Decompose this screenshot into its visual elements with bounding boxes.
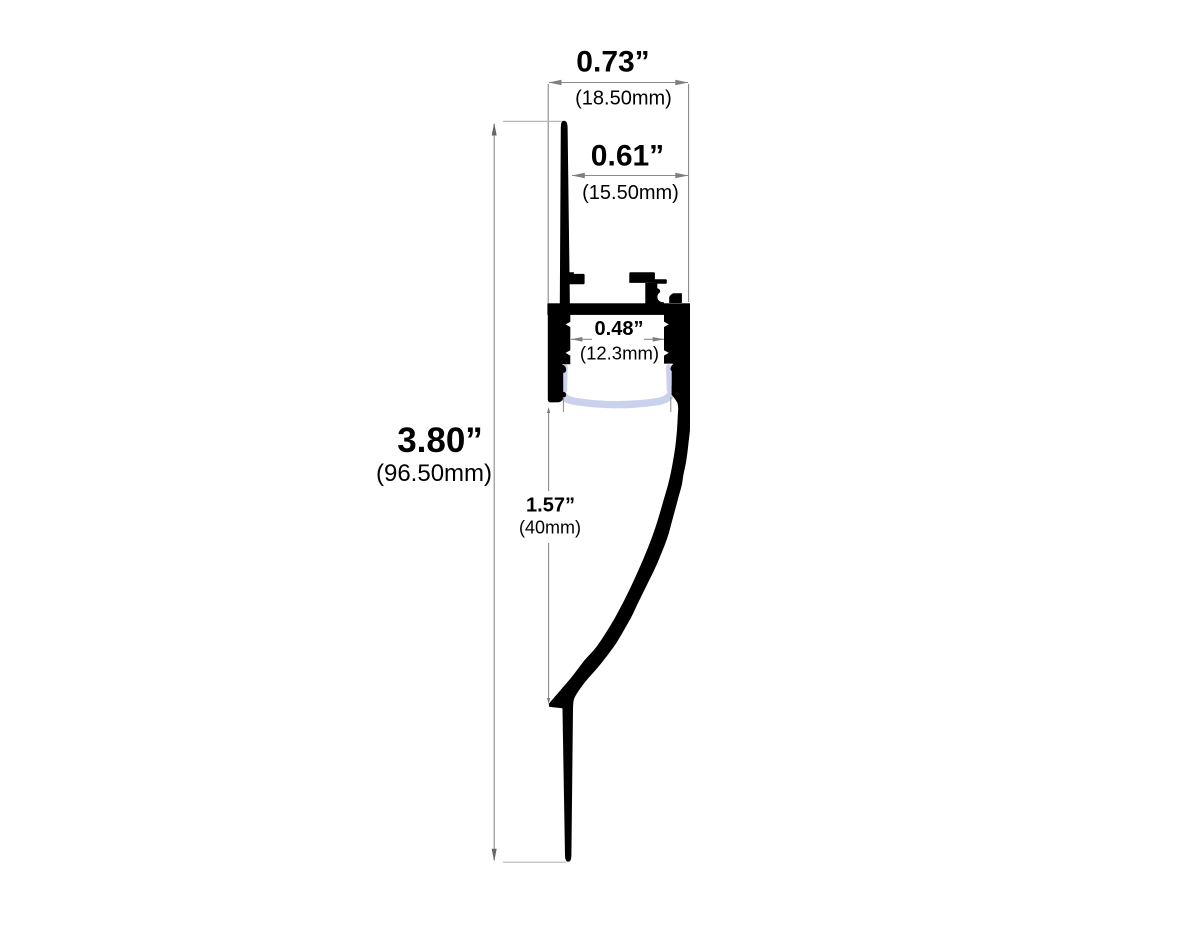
- svg-text:3.80”: 3.80”: [397, 421, 483, 460]
- svg-text:(96.50mm): (96.50mm): [376, 460, 492, 487]
- svg-text:(18.50mm): (18.50mm): [575, 88, 672, 110]
- svg-text:1.57”: 1.57”: [526, 495, 575, 517]
- svg-text:(12.3mm): (12.3mm): [580, 343, 659, 364]
- svg-text:(40mm): (40mm): [519, 518, 581, 538]
- svg-text:0.61”: 0.61”: [591, 140, 664, 173]
- svg-text:(15.50mm): (15.50mm): [582, 182, 679, 204]
- svg-text:0.48”: 0.48”: [595, 318, 644, 340]
- svg-text:0.73”: 0.73”: [576, 46, 649, 79]
